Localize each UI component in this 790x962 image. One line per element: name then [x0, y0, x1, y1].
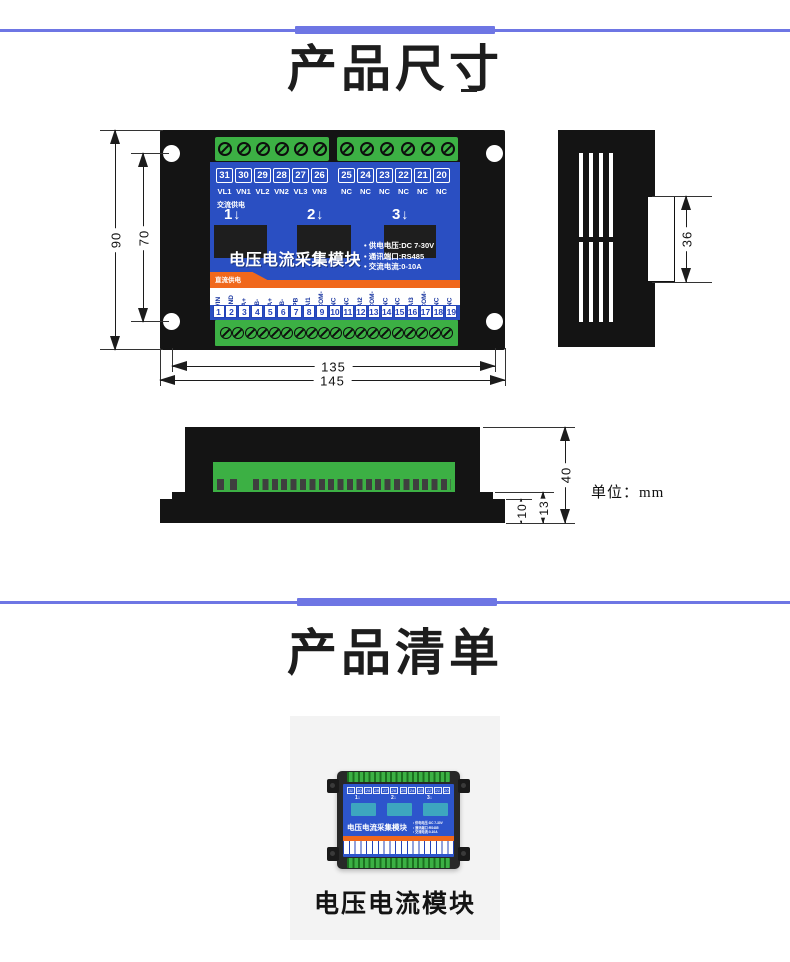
spec-line: • 供电电压:DC 7-30V [364, 241, 460, 252]
pin-number: 12 [355, 305, 367, 318]
pin-number: 7 [290, 305, 302, 318]
down-arrow-icon: ↓ [394, 795, 397, 801]
terminal-slots [253, 479, 451, 490]
terminal-label: VN2 [273, 187, 289, 196]
dim-front-total: 40 [565, 427, 566, 523]
down-arrow-icon: ↓ [358, 795, 361, 801]
terminal-label: VL3 [292, 187, 308, 196]
title-underline-dash [461, 89, 477, 92]
pin-label-cell: NC [329, 288, 342, 305]
module-front-panel: 31VL1 30VN1 29VL2 28VN2 27VL3 26VN3 25NC… [210, 162, 460, 320]
photo-module-title: 电压电流采集模块 [347, 822, 407, 833]
screw-icon [281, 327, 293, 339]
terminal-number: 28 [373, 787, 381, 794]
photo-spec-list: • 供电电压:DC 7-30V • 通讯端口:RS485 • 交流电流:0-10… [413, 821, 453, 835]
spec-line: • 通讯端口:RS485 [364, 252, 460, 263]
terminal-column: 24NC [357, 168, 374, 196]
terminal-column: 23NC [376, 168, 393, 196]
channel-marker: 1↓ [224, 206, 240, 223]
ct-window [351, 803, 376, 816]
screw-icon [404, 327, 416, 339]
screw-icon [237, 142, 251, 156]
pin-label-cell: B- [252, 288, 265, 305]
pin-label-cell: GND [226, 288, 239, 305]
channel-marker: 3↓ [392, 206, 408, 223]
dim-front-base: 10 [521, 499, 522, 523]
mounting-ear [458, 779, 470, 793]
pin-number: 2 [225, 305, 237, 318]
terminal-number: 25 [338, 168, 355, 183]
photo-ct-windows [343, 803, 454, 816]
terminal-row-top-left: 31VL1 30VN1 29VL2 28VN2 27VL3 26VN3 [216, 168, 328, 196]
down-arrow-icon: ↓ [401, 206, 408, 222]
screw-icon [330, 327, 342, 339]
pin-label-cell: B- [277, 288, 290, 305]
dim-value: 10 [515, 501, 529, 520]
photo-channel-markers: 1↓ 2↓ 3↓ [343, 795, 454, 802]
pin-number: 10 [329, 305, 341, 318]
ct-window [387, 803, 412, 816]
channel-marker: 3↓ [427, 795, 432, 801]
photo-terminal-group: 313029282726 [347, 787, 398, 794]
terminal-column: 21NC [414, 168, 431, 196]
terminal-number: 31 [216, 168, 233, 183]
terminal-label: NC [376, 187, 392, 196]
pin-label-cell: NC [431, 288, 444, 305]
module-front-view-base [160, 499, 505, 523]
screw-icon [416, 327, 428, 339]
pin-label-cell: VIN [213, 288, 226, 305]
dim-value: 145 [313, 373, 352, 388]
terminal-column: 20NC [433, 168, 450, 196]
photo-terminal-numbers: 313029282726 252423222120 [347, 787, 450, 794]
dim-width-outer: 145 [160, 380, 505, 381]
terminal-label: NC [357, 187, 373, 196]
terminal-number: 28 [273, 168, 290, 183]
pin-number: 16 [407, 305, 419, 318]
dim-width-inner: 135 [172, 366, 495, 367]
mounting-hole [163, 145, 180, 162]
top-divider-accent [295, 26, 495, 34]
terminal-slots [217, 479, 241, 490]
screw-icon [232, 327, 244, 339]
pin-label-cell: AI2 [354, 288, 367, 305]
photo-terminal-block-bottom [347, 858, 450, 868]
screw-icon [379, 327, 391, 339]
pin-number: 13 [368, 305, 380, 318]
terminal-column: 29VL2 [254, 168, 271, 196]
terminal-number: 23 [417, 787, 425, 794]
pin-number: 15 [394, 305, 406, 318]
channel-markers: 1↓ 2↓ 3↓ [210, 206, 460, 226]
screw-icon [275, 142, 289, 156]
ct-window [423, 803, 448, 816]
pin-label-cell: AI3 [406, 288, 419, 305]
mounting-hole [486, 313, 503, 330]
bottom-divider-accent [297, 598, 497, 606]
screw-icon [294, 327, 306, 339]
terminal-label: NC [338, 187, 354, 196]
terminal-number: 25 [400, 787, 408, 794]
pin-label-cell: A+ [264, 288, 277, 305]
screw-icon [355, 327, 367, 339]
screw-icon [340, 142, 354, 156]
terminal-number: 26 [311, 168, 328, 183]
screw-icon [367, 327, 379, 339]
down-arrow-icon: ↓ [316, 206, 323, 222]
screw-icon [245, 327, 257, 339]
screw-icon [429, 327, 441, 339]
dim-front-mid: 13 [543, 492, 544, 523]
unit-label: 单位：mm [591, 481, 664, 502]
dc-power-label: 直流供电 [215, 274, 241, 284]
mounting-ear [458, 847, 470, 861]
terminal-number: 21 [434, 787, 442, 794]
pin-number-row: 12345678910111213141516171819 [213, 305, 458, 318]
channel-marker: 2↓ [391, 795, 396, 801]
terminal-number: 20 [443, 787, 451, 794]
vent-slots [579, 242, 616, 322]
screw-icon [380, 142, 394, 156]
screw-icon [318, 327, 330, 339]
pin-number: 6 [277, 305, 289, 318]
pin-number: 9 [316, 305, 328, 318]
pin-label-cell: NC [380, 288, 393, 305]
dim-value: 135 [314, 359, 353, 374]
section-title-list: 产品清单 [0, 626, 790, 681]
screw-icon [306, 327, 318, 339]
screw-icon [421, 142, 435, 156]
pin-number: 5 [264, 305, 276, 318]
down-arrow-icon: ↓ [430, 795, 433, 801]
terminal-column: 25NC [338, 168, 355, 196]
terminal-label: VN3 [311, 187, 327, 196]
pin-label-cell: NC [393, 288, 406, 305]
screw-icon [401, 142, 415, 156]
terminal-label: VL2 [254, 187, 270, 196]
terminal-number: 22 [425, 787, 433, 794]
dim-side-depth: 36 [686, 196, 687, 282]
extension-line [131, 153, 169, 154]
mounting-ear [327, 779, 339, 793]
dim-height-inner: 70 [143, 153, 144, 322]
photo-front-panel: 313029282726 252423222120 1↓ 2↓ 3↓ 电压电流采… [343, 784, 454, 857]
channel-marker: 1↓ [355, 795, 360, 801]
terminal-number: 26 [390, 787, 398, 794]
pin-number: 19 [445, 305, 457, 318]
terminal-number: 27 [381, 787, 389, 794]
terminal-number: 30 [356, 787, 364, 794]
terminal-column: 27VL3 [292, 168, 309, 196]
terminal-block-bottom [215, 320, 458, 346]
terminal-number: 24 [357, 168, 374, 183]
pin-number: 14 [381, 305, 393, 318]
module-front-view-step [172, 492, 493, 499]
screw-icon [269, 327, 281, 339]
pin-label-cell: AI1 [303, 288, 316, 305]
dim-value: 13 [537, 498, 551, 517]
screw-icon [220, 327, 232, 339]
photo-terminal-group: 252423222120 [400, 787, 451, 794]
photo-terminal-block-top [347, 772, 450, 782]
screw-icon [313, 142, 327, 156]
terminal-number: 24 [408, 787, 416, 794]
pin-label-cell: ACOM- [367, 288, 380, 305]
terminal-number: 23 [376, 168, 393, 183]
vent-slots [579, 153, 616, 237]
pin-label-cell: NC [444, 288, 457, 305]
terminal-column: 30VN1 [235, 168, 252, 196]
terminal-label: VL1 [216, 187, 232, 196]
terminal-number: 31 [347, 787, 355, 794]
spec-line: • 交流电流:0-10A [413, 830, 453, 835]
pin-number: 18 [432, 305, 444, 318]
pin-label-cell: ACOM- [316, 288, 329, 305]
screw-icon [392, 327, 404, 339]
terminal-number: 29 [254, 168, 271, 183]
terminal-number: 21 [414, 168, 431, 183]
photo-pin-strip [343, 841, 454, 854]
screw-icon [441, 142, 455, 156]
extension-line [131, 321, 169, 322]
dim-value: 90 [108, 228, 123, 252]
terminal-column: 26VN3 [311, 168, 328, 196]
product-photo: 313029282726 252423222120 1↓ 2↓ 3↓ 电压电流采… [327, 767, 470, 873]
terminal-number: 27 [292, 168, 309, 183]
terminal-label: VN1 [235, 187, 251, 196]
down-arrow-icon: ↓ [233, 206, 240, 222]
spec-list: • 供电电压:DC 7-30V • 通讯端口:RS485 • 交流电流:0-10… [364, 241, 460, 273]
mounting-hole [486, 145, 503, 162]
terminal-label: NC [395, 187, 411, 196]
dim-value: 36 [679, 227, 694, 251]
terminal-block-top-left [215, 137, 329, 161]
orange-stripe [210, 272, 460, 288]
front-terminal-strip [213, 462, 455, 492]
pin-label-cell: ACOM- [418, 288, 431, 305]
dim-height-outer: 90 [115, 130, 116, 350]
screw-icon [360, 142, 374, 156]
pin-label-strip: VIN GND A+ B- A+ B- PB AI1 ACOM- NC NC A… [210, 288, 460, 305]
pin-number: 8 [303, 305, 315, 318]
terminal-column: 22NC [395, 168, 412, 196]
screw-icon [294, 142, 308, 156]
module-title: 电压电流采集模块 [224, 246, 366, 270]
screw-icon [257, 327, 269, 339]
product-card: 313029282726 252423222120 1↓ 2↓ 3↓ 电压电流采… [290, 716, 500, 940]
pin-label-cell: PB [290, 288, 303, 305]
pin-number: 4 [251, 305, 263, 318]
pin-number: 17 [420, 305, 432, 318]
pin-label-cell: A+ [239, 288, 252, 305]
screw-icon [218, 142, 232, 156]
terminal-number: 29 [364, 787, 372, 794]
terminal-number: 20 [433, 168, 450, 183]
pin-number: 1 [213, 305, 225, 318]
screw-icon [256, 142, 270, 156]
screw-icon [343, 327, 355, 339]
terminal-column: 28VN2 [273, 168, 290, 196]
section-title-dimensions: 产品尺寸 [0, 42, 790, 97]
pin-label-cell: NC [341, 288, 354, 305]
dim-value: 70 [136, 225, 151, 249]
pin-number: 3 [238, 305, 250, 318]
terminal-label: NC [414, 187, 430, 196]
product-caption: 电压电流模块 [290, 884, 500, 920]
channel-marker: 2↓ [307, 206, 323, 223]
pin-number: 11 [342, 305, 354, 318]
terminal-label: NC [433, 187, 449, 196]
connector-tab [647, 196, 675, 282]
spec-line: • 交流电流:0-10A [364, 262, 460, 273]
terminal-column: 31VL1 [216, 168, 233, 196]
terminal-number: 22 [395, 168, 412, 183]
mounting-ear [327, 847, 339, 861]
dim-value: 40 [558, 463, 573, 487]
terminal-number: 30 [235, 168, 252, 183]
terminal-row-top-right: 25NC 24NC 23NC 22NC 21NC 20NC [338, 168, 450, 196]
terminal-block-top-right [337, 137, 458, 161]
screw-icon [441, 327, 453, 339]
